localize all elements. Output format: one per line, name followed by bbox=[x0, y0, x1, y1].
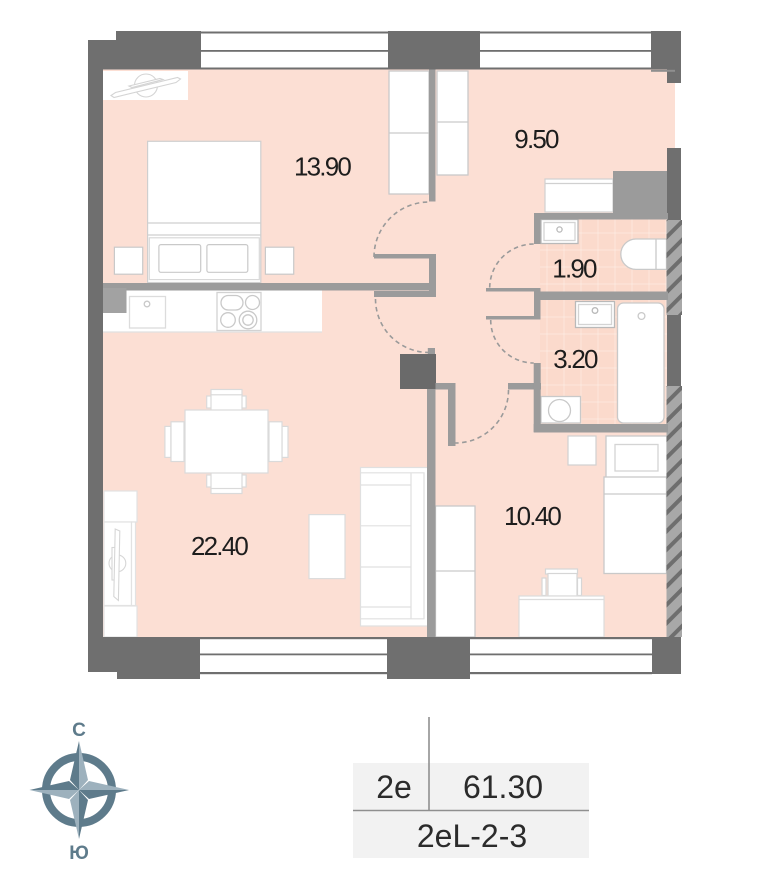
svg-text:10.40: 10.40 bbox=[504, 501, 561, 531]
svg-text:2e: 2e bbox=[376, 769, 412, 805]
svg-text:22.40: 22.40 bbox=[191, 531, 248, 561]
svg-text:13.90: 13.90 bbox=[294, 152, 351, 182]
svg-text:3.20: 3.20 bbox=[553, 344, 598, 374]
svg-text:С: С bbox=[72, 720, 86, 741]
svg-text:2eL-2-3: 2eL-2-3 bbox=[417, 818, 527, 854]
svg-text:1.90: 1.90 bbox=[552, 253, 597, 283]
svg-text:9.50: 9.50 bbox=[514, 124, 559, 154]
svg-text:61.30: 61.30 bbox=[463, 769, 543, 805]
svg-text:Ю: Ю bbox=[69, 843, 89, 864]
